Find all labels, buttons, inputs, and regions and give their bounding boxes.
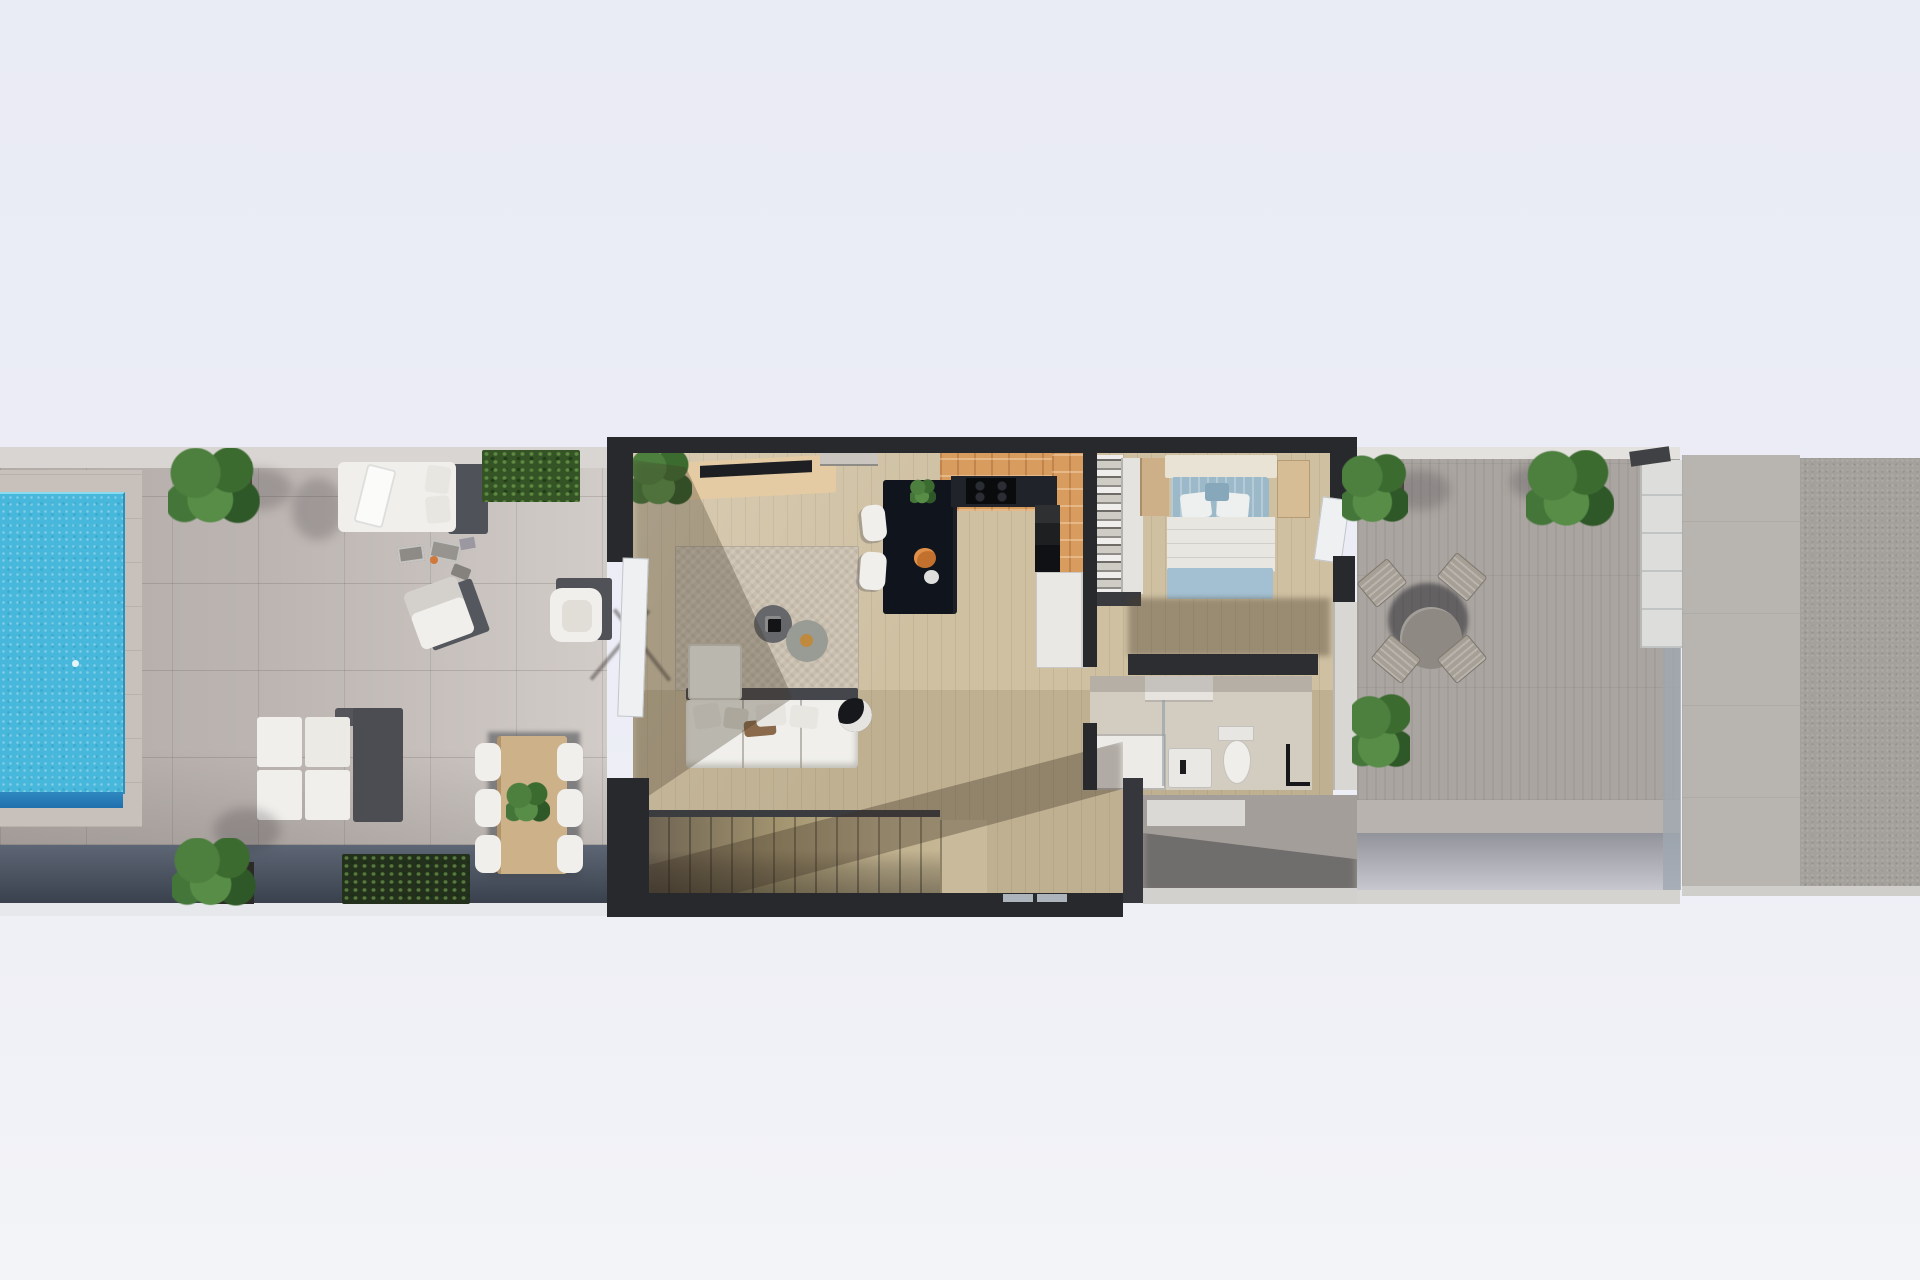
- potted-plant: [168, 448, 260, 526]
- door-threshold: [1003, 894, 1033, 902]
- dining-chair: [557, 789, 583, 827]
- boundary-hedge-planter: [342, 854, 470, 904]
- bed-cushion: [1205, 483, 1229, 501]
- lounge-cushion: [305, 717, 350, 767]
- floorplan-render: [0, 0, 1920, 1280]
- lounge-cushion: [305, 770, 350, 820]
- kitchen-bedroom-wall: [1083, 440, 1097, 667]
- dining-chair: [475, 835, 501, 873]
- house-wall-left-upper: [607, 437, 633, 562]
- potted-plant: [1526, 450, 1614, 530]
- pool-deep-wall: [0, 792, 123, 808]
- washbasin: [1168, 748, 1212, 788]
- terrace-armchair: [550, 576, 614, 646]
- dining-chair: [475, 789, 501, 827]
- patio-bottom-band: [1143, 888, 1357, 904]
- potted-plant: [1342, 452, 1408, 528]
- potted-plant: [172, 838, 256, 908]
- neighbour-terrace-light: [1682, 455, 1800, 890]
- pantry-shelves: [1097, 455, 1123, 595]
- floor-lamp: [838, 698, 872, 732]
- small-dish: [924, 570, 939, 584]
- door-threshold: [1037, 894, 1067, 902]
- island-plant: [910, 479, 936, 505]
- bedside-bench: [1277, 460, 1310, 518]
- fruit-bowl: [914, 548, 936, 568]
- armchair-seat: [562, 600, 592, 632]
- bed: [1165, 455, 1277, 600]
- sofa-pillow: [789, 705, 819, 730]
- bathroom-hall-wall: [1083, 723, 1097, 790]
- modular-lounge-set: [255, 705, 405, 825]
- outdoor-dining-set: [470, 730, 588, 880]
- foot-blanket: [1167, 568, 1273, 599]
- toilet-tank: [1218, 726, 1254, 741]
- towel-stand: [1286, 744, 1310, 786]
- dining-chair: [557, 835, 583, 873]
- bedroom-floor-shadow: [1128, 598, 1330, 656]
- sliding-door-left: [617, 558, 649, 718]
- bathroom-shade: [1090, 676, 1312, 692]
- window-sill: [820, 452, 878, 466]
- table-plant: [506, 782, 550, 824]
- lounge-side-panel: [353, 708, 403, 822]
- hedge-planter: [482, 450, 580, 502]
- coffee-table-tray: [765, 616, 781, 632]
- headboard: [1165, 455, 1277, 478]
- swimming-pool: [0, 492, 125, 794]
- patio-side-wall: [1123, 778, 1143, 903]
- dining-chair: [475, 743, 501, 781]
- oven-column: [1035, 505, 1060, 572]
- round-dining-set: [1360, 555, 1482, 690]
- lounge-cushion: [257, 717, 302, 767]
- basin-tap: [1180, 760, 1186, 774]
- neighbour-bottom-band: [1682, 886, 1920, 896]
- patio-ledge: [1147, 800, 1245, 826]
- fridge: [1036, 572, 1088, 668]
- house-wall-top: [607, 437, 1357, 453]
- railing-lower-rail: [1663, 648, 1681, 890]
- glass-railing: [1640, 460, 1684, 648]
- bar-stool: [860, 504, 888, 542]
- house-wall-right-mid: [1333, 556, 1355, 604]
- terrace-right-base: [1357, 890, 1680, 904]
- daybed-shadow: [292, 478, 344, 540]
- neighbour-terrace-dark: [1800, 458, 1920, 893]
- duvet: [1167, 517, 1275, 572]
- bedroom-bathroom-wall: [1128, 654, 1318, 675]
- dining-chair: [557, 743, 583, 781]
- orange-accessory: [430, 556, 438, 564]
- cooktop: [966, 478, 1016, 504]
- terrace-right-ledge: [1357, 800, 1680, 833]
- sidewalk-edge: [0, 903, 607, 916]
- potted-plant: [1352, 690, 1410, 776]
- daybed-pillow: [425, 495, 451, 524]
- shower-glass: [1162, 700, 1165, 786]
- pool-sparkle: [72, 660, 79, 667]
- daybed-pillow: [424, 464, 452, 494]
- bar-stool: [859, 551, 888, 591]
- terrace-right-shadow: [1357, 833, 1680, 890]
